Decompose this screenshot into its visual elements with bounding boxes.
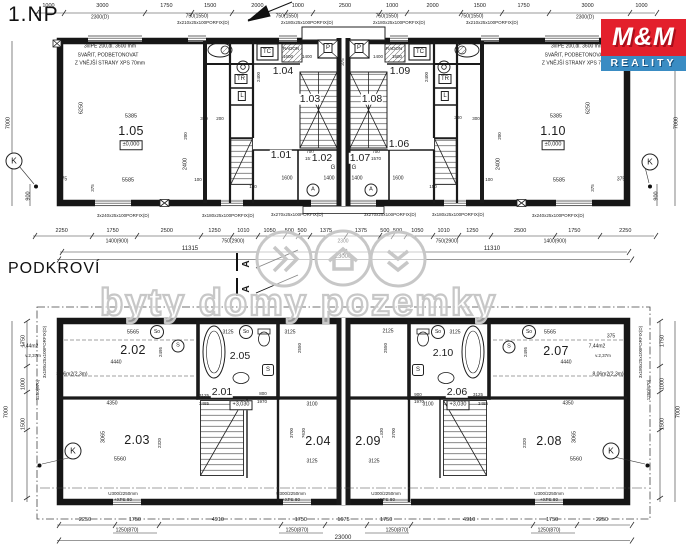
mark-so-circle: So bbox=[150, 325, 164, 339]
dim-2495: 2495 bbox=[159, 347, 164, 357]
room-label-104: 1.04 bbox=[272, 66, 294, 77]
dim-4350: 4350 bbox=[106, 402, 117, 407]
dim-cell: 1010 bbox=[431, 229, 457, 235]
dim-3100: 3100 bbox=[306, 403, 317, 408]
dim-sub: 1250(870) bbox=[286, 529, 309, 534]
dim-1600: 1600 bbox=[392, 55, 402, 60]
room-label-206: 2.06 bbox=[446, 387, 468, 398]
dim-cell: 1375 bbox=[343, 229, 378, 235]
dim-sub: 750(2900) bbox=[222, 240, 245, 245]
dim-300: 300 bbox=[200, 117, 208, 122]
room-label-205: 2.05 bbox=[229, 351, 251, 362]
note-porfix: 2x180x25x100PORFIX(D) bbox=[373, 21, 425, 26]
dim-23000: 23000 bbox=[335, 535, 352, 541]
mark-a-circle: A bbox=[365, 184, 378, 197]
note-beam: 3xIPE 200,dl. 3600 mm bbox=[84, 45, 136, 50]
dim-200: 200 bbox=[184, 132, 189, 140]
dim-2495: 2495 bbox=[524, 347, 529, 357]
note-porfix: 3x240x25x100PORFIX(D) bbox=[532, 214, 584, 219]
dim-1750: 1750 bbox=[660, 335, 666, 347]
dim-3125: 3125 bbox=[473, 393, 483, 398]
note-porfix: 3x240x25x100PORFIX(D) bbox=[97, 214, 149, 219]
dim-cell: 1050 bbox=[404, 229, 431, 235]
dim-3125: 3125 bbox=[222, 331, 233, 336]
area-label: 8,06m2(2,3m) bbox=[56, 373, 87, 378]
dim-cell: 1500 bbox=[190, 4, 230, 10]
dim-1400: 1400 bbox=[351, 177, 362, 182]
dim-2400: 2400 bbox=[257, 72, 262, 82]
dim-375: 375 bbox=[617, 178, 625, 183]
logo-mm: M&M bbox=[601, 19, 686, 56]
section-letter-a: A bbox=[242, 260, 252, 267]
dim-cell: 1000 bbox=[379, 4, 406, 10]
dim-3125: 3125 bbox=[199, 394, 209, 399]
dim-cell: 1750 bbox=[500, 4, 547, 10]
cell-tc: TČ bbox=[261, 47, 274, 57]
mark-s-circle: S bbox=[172, 340, 185, 353]
dim-900: 900 bbox=[654, 191, 660, 200]
height-label: v.2,37m bbox=[595, 354, 611, 359]
note-beam: Z VNĚJŠÍ STRANY XPS 70mm bbox=[75, 62, 145, 67]
dim-cell: 2500 bbox=[488, 229, 552, 235]
grid-mark-k: K bbox=[642, 154, 659, 171]
mark-g: G bbox=[352, 165, 357, 171]
grid-mark-k: K bbox=[65, 443, 82, 460]
dim-cell: 1000 bbox=[628, 4, 655, 10]
mark-s-square: S bbox=[262, 364, 274, 376]
dim-6250: 6250 bbox=[586, 102, 592, 114]
dim-2400: 2400 bbox=[496, 158, 502, 170]
dim-cell: 1675 bbox=[323, 518, 365, 524]
dim-150: 150 bbox=[249, 185, 257, 190]
dim-1600: 1600 bbox=[392, 177, 403, 182]
dim-cell: 2250 bbox=[33, 229, 90, 235]
note-u300: U300/2250mm bbox=[534, 491, 564, 496]
room-label-208: 2.08 bbox=[535, 435, 563, 448]
note-porfix: 3x210x25x100PORFIX(D) bbox=[466, 21, 518, 26]
dim-cell: 1750 bbox=[143, 4, 190, 10]
dim-cell: 1000 bbox=[284, 4, 311, 10]
level-mark: +3,030 bbox=[230, 400, 253, 410]
cell-tc: TČ bbox=[414, 47, 427, 57]
dim-cell: 2250 bbox=[574, 518, 630, 524]
attic-party-wall bbox=[337, 318, 351, 505]
room-label-105: 1.05 bbox=[117, 125, 145, 138]
dim-2550: 2550 bbox=[298, 343, 303, 353]
np1-bottom-dim-row: 2250 1750 2500 1250 1010 1050 500 500 13… bbox=[33, 229, 654, 235]
cell-tr: TR bbox=[235, 74, 248, 84]
dim-1400: 1400 bbox=[302, 55, 312, 60]
dim-cell: 500 bbox=[296, 229, 309, 235]
area-label: 7,44m2 bbox=[22, 345, 39, 350]
dim-375: 375 bbox=[591, 184, 596, 192]
dim-375: 375 bbox=[341, 58, 346, 66]
dim-5585: 5585 bbox=[553, 178, 565, 184]
np1-top-dim-row: 1000 3000 1750 1500 2000 1000 2500 1000 … bbox=[35, 4, 655, 10]
attic-bottom-dim-row: 2250 1750 4910 1750 1675 1750 4910 1750 … bbox=[57, 518, 630, 524]
dim-cell: 1750 bbox=[530, 518, 574, 524]
mark-g: G bbox=[331, 165, 336, 171]
room-label-108: 1.08 bbox=[361, 94, 383, 105]
dim-2320: 2320 bbox=[523, 438, 528, 448]
dim-cell: 4910 bbox=[157, 518, 279, 524]
dim-7000: 7000 bbox=[674, 117, 680, 129]
cell-p: P bbox=[323, 43, 332, 53]
dim-sub: 1400(900) bbox=[544, 240, 567, 245]
dim-cell: 1750 bbox=[364, 518, 408, 524]
dim-11310: 11310 bbox=[484, 246, 500, 252]
dim-6250: 6250 bbox=[79, 102, 85, 114]
dim-cell: 1000 bbox=[35, 4, 62, 10]
dim-sub: 1250(870) bbox=[538, 529, 561, 534]
dim-cell: 500 bbox=[391, 229, 404, 235]
dim-900: 900 bbox=[26, 191, 32, 200]
dim-sub: 1400(900) bbox=[106, 240, 129, 245]
dim-7000: 7000 bbox=[4, 406, 10, 418]
radon-label: RADON bbox=[386, 47, 402, 52]
dim-11315: 11315 bbox=[182, 246, 198, 252]
dim-300: 300 bbox=[454, 116, 462, 121]
dim-1400: 1400 bbox=[323, 177, 334, 182]
dim-1000: 1000 bbox=[21, 378, 27, 390]
dim-3485: 3485 bbox=[199, 402, 209, 407]
dim-cell: 1750 bbox=[113, 518, 157, 524]
dim-375: 375 bbox=[607, 335, 615, 340]
room-label-201: 2.01 bbox=[211, 387, 233, 398]
dim-2400: 2400 bbox=[425, 72, 430, 82]
note-beam: SVAŘIT, PODBETONOVAT bbox=[545, 53, 606, 58]
dim-5385: 5385 bbox=[125, 114, 137, 120]
dim-4440: 4440 bbox=[110, 361, 121, 366]
dim-3125: 3125 bbox=[284, 331, 295, 336]
dim-sub: 2300(D) bbox=[576, 15, 594, 20]
dim-1500: 1500 bbox=[660, 418, 666, 430]
area-label: 8,06m2(2,3m) bbox=[592, 373, 623, 378]
dim-3700: 3700 bbox=[392, 428, 397, 438]
note-porfix-side: 3x180x25x100PORFIX(D) bbox=[43, 326, 48, 378]
room-label-209: 2.09 bbox=[354, 435, 382, 448]
note-beam: 3xIPE 200,dl. 3600 mm bbox=[551, 45, 603, 50]
mark-s-square: S bbox=[412, 364, 424, 376]
area-label: 7,44m2 bbox=[589, 345, 606, 350]
dim-sub: 2300(D) bbox=[91, 15, 109, 20]
room-label-210: 2.10 bbox=[432, 348, 454, 359]
section-letter-a: A bbox=[242, 285, 252, 292]
dim-sub: 750(1550) bbox=[186, 14, 209, 19]
note-porfix: 3x180x25x100PORFIX(D) bbox=[432, 213, 484, 218]
room-label-107: 1.07 bbox=[349, 153, 371, 164]
dim-700: 700 bbox=[372, 150, 380, 155]
note-porfix: 3x270x25x100PORFIX(D) bbox=[364, 213, 416, 218]
dim-3125: 3125 bbox=[449, 331, 460, 336]
dim-sub-side: 1250(870) bbox=[647, 380, 652, 401]
cell-tr: TR bbox=[439, 74, 452, 84]
room-label-110: 1.10 bbox=[539, 125, 567, 138]
radon-label: RADON bbox=[283, 47, 299, 52]
room-label-203: 2.03 bbox=[123, 434, 151, 447]
note-u300: U300/2250mm bbox=[371, 491, 401, 496]
dim-1000: 1000 bbox=[660, 378, 666, 390]
note-u300: U300/2250mm bbox=[108, 491, 138, 496]
dim-375: 375 bbox=[59, 178, 67, 183]
dim-5560: 5560 bbox=[570, 457, 582, 463]
mark-so-circle: So bbox=[522, 325, 536, 339]
level-mark: ±0,000 bbox=[120, 140, 143, 150]
dim-cell: 2500 bbox=[311, 4, 378, 10]
mark-a-circle: A bbox=[307, 184, 320, 197]
dim-cell: 2000 bbox=[406, 4, 460, 10]
room-label-102: 1.02 bbox=[311, 153, 333, 164]
dim-2125: 2125 bbox=[382, 330, 393, 335]
dim-cell: 1750 bbox=[552, 229, 597, 235]
dim-cell: 1250 bbox=[199, 229, 231, 235]
note-porfix: 3x180x25x100PORFIX(D) bbox=[202, 214, 254, 219]
dim-5565: 5565 bbox=[544, 330, 556, 336]
dim-cell: 2000 bbox=[230, 4, 284, 10]
room-label-101: 1.01 bbox=[270, 150, 292, 161]
dim-sub-side: 1250(870) bbox=[36, 380, 41, 401]
dim-3485: 3485 bbox=[478, 401, 488, 406]
dim-7000: 7000 bbox=[676, 406, 682, 418]
dim-cell: 2500 bbox=[135, 229, 199, 235]
grid-mark-k: K bbox=[603, 443, 620, 460]
note-xps: +XPS 80 bbox=[114, 498, 132, 503]
blueprint-sheet: 1.NP PODKROVÍ M&M REALITY 1000 3000 1750… bbox=[0, 0, 686, 545]
room-label-207: 2.07 bbox=[542, 345, 570, 358]
dim-1970: 1970 bbox=[257, 400, 267, 405]
room-label-103: 1.03 bbox=[299, 94, 321, 105]
room-label-109: 1.09 bbox=[389, 66, 411, 77]
dim-cell: 1750 bbox=[279, 518, 323, 524]
dim-1970: 1970 bbox=[414, 400, 424, 405]
dim-900: 900 bbox=[414, 393, 422, 398]
dim-5565: 5565 bbox=[127, 330, 139, 336]
dim-cell: 4910 bbox=[408, 518, 530, 524]
note-xps: +XPS 80 bbox=[540, 498, 558, 503]
dim-sub: 750(1550) bbox=[376, 14, 399, 19]
dim-1500: 1500 bbox=[21, 418, 27, 430]
room-label-202: 2.02 bbox=[119, 344, 147, 357]
dim-cell: 3000 bbox=[547, 4, 628, 10]
dim-sub: 1250(870) bbox=[386, 529, 409, 534]
mm-reality-logo: M&M REALITY bbox=[601, 19, 686, 71]
dim-4440: 4440 bbox=[560, 361, 571, 366]
dim-sub: 1250(870) bbox=[116, 529, 139, 534]
cell-p: P bbox=[354, 43, 363, 53]
dim-cell: 1750 bbox=[90, 229, 135, 235]
dim-1600: 1600 bbox=[283, 55, 293, 60]
dim-5385: 5385 bbox=[550, 114, 562, 120]
mark-so-circle: So bbox=[239, 325, 253, 339]
dim-cell: 1010 bbox=[230, 229, 256, 235]
dim-23000: 23000 bbox=[335, 254, 352, 260]
mark-s-circle: S bbox=[503, 341, 516, 354]
level-mark: ±0,000 bbox=[542, 140, 565, 150]
dim-5560: 5560 bbox=[114, 457, 126, 463]
dim-cell: 1375 bbox=[308, 229, 343, 235]
dim-cell: 2250 bbox=[597, 229, 654, 235]
dim-cell: 1500 bbox=[460, 4, 500, 10]
dim-150: 150 bbox=[429, 185, 437, 190]
dim-200: 200 bbox=[216, 117, 224, 122]
dim-375: 375 bbox=[91, 184, 96, 192]
dim-100: 100 bbox=[194, 178, 202, 183]
height-label: v.2,37m bbox=[25, 354, 41, 359]
dim-3125: 3125 bbox=[306, 460, 317, 465]
level-mark: +3,030 bbox=[447, 400, 470, 410]
floorplan-linework bbox=[0, 0, 686, 545]
cell-l: L bbox=[238, 91, 246, 101]
dim-1400: 1400 bbox=[373, 55, 383, 60]
room-label-204: 2.04 bbox=[304, 435, 332, 448]
dim-1570: 1570 bbox=[371, 157, 381, 162]
dim-cell: 500 bbox=[379, 229, 392, 235]
dim-3125: 3125 bbox=[368, 460, 379, 465]
dim-2320: 2320 bbox=[158, 438, 163, 448]
dim-7000: 7000 bbox=[6, 117, 12, 129]
logo-reality: REALITY bbox=[601, 56, 686, 71]
dim-800: 800 bbox=[259, 392, 267, 397]
dim-4350: 4350 bbox=[562, 402, 573, 407]
mark-so-circle: So bbox=[431, 325, 445, 339]
dim-cell: 2250 bbox=[57, 518, 113, 524]
dim-100: 100 bbox=[485, 178, 493, 183]
note-porfix-side: 3x180x25x100PORFIX(D) bbox=[639, 326, 644, 378]
dim-3065: 3065 bbox=[572, 431, 578, 443]
note-u300: U300/2250mm bbox=[276, 491, 306, 496]
dim-sub: 750(2900) bbox=[436, 240, 459, 245]
dim-200: 200 bbox=[498, 132, 503, 140]
note-porfix: 3x270x25x100PORFIX(D) bbox=[271, 213, 323, 218]
grid-mark-k: K bbox=[6, 153, 23, 170]
note-porfix: 3x210x25x100PORFIX(D) bbox=[177, 21, 229, 26]
dim-5585: 5585 bbox=[122, 178, 134, 184]
dim-3100: 3100 bbox=[422, 403, 433, 408]
dim-cell: 500 bbox=[283, 229, 296, 235]
note-porfix: 2x180x25x100PORFIX(D) bbox=[281, 21, 333, 26]
dim-3700: 3700 bbox=[290, 428, 295, 438]
dim-cell: 1050 bbox=[256, 229, 283, 235]
dim-sub: 750(1550) bbox=[276, 14, 299, 19]
dim-cell: 1250 bbox=[456, 229, 488, 235]
dim-sub: 750(1550) bbox=[461, 14, 484, 19]
cell-l: L bbox=[441, 91, 449, 101]
dim-3065: 3065 bbox=[101, 431, 107, 443]
dim-2550: 2550 bbox=[384, 343, 389, 353]
dim-2400: 2400 bbox=[183, 158, 189, 170]
note-xps: +XPS 80 bbox=[377, 498, 395, 503]
attic-title: PODKROVÍ bbox=[8, 260, 100, 278]
dim-cell: 3000 bbox=[62, 4, 143, 10]
dim-sub: 2300 bbox=[337, 240, 348, 245]
dim-1600: 1600 bbox=[281, 177, 292, 182]
note-xps: +XPS 80 bbox=[282, 498, 300, 503]
note-beam: SVAŘIT, PODBETONOVAT bbox=[78, 53, 139, 58]
room-label-106: 1.06 bbox=[388, 139, 410, 150]
dim-300: 300 bbox=[472, 117, 480, 122]
